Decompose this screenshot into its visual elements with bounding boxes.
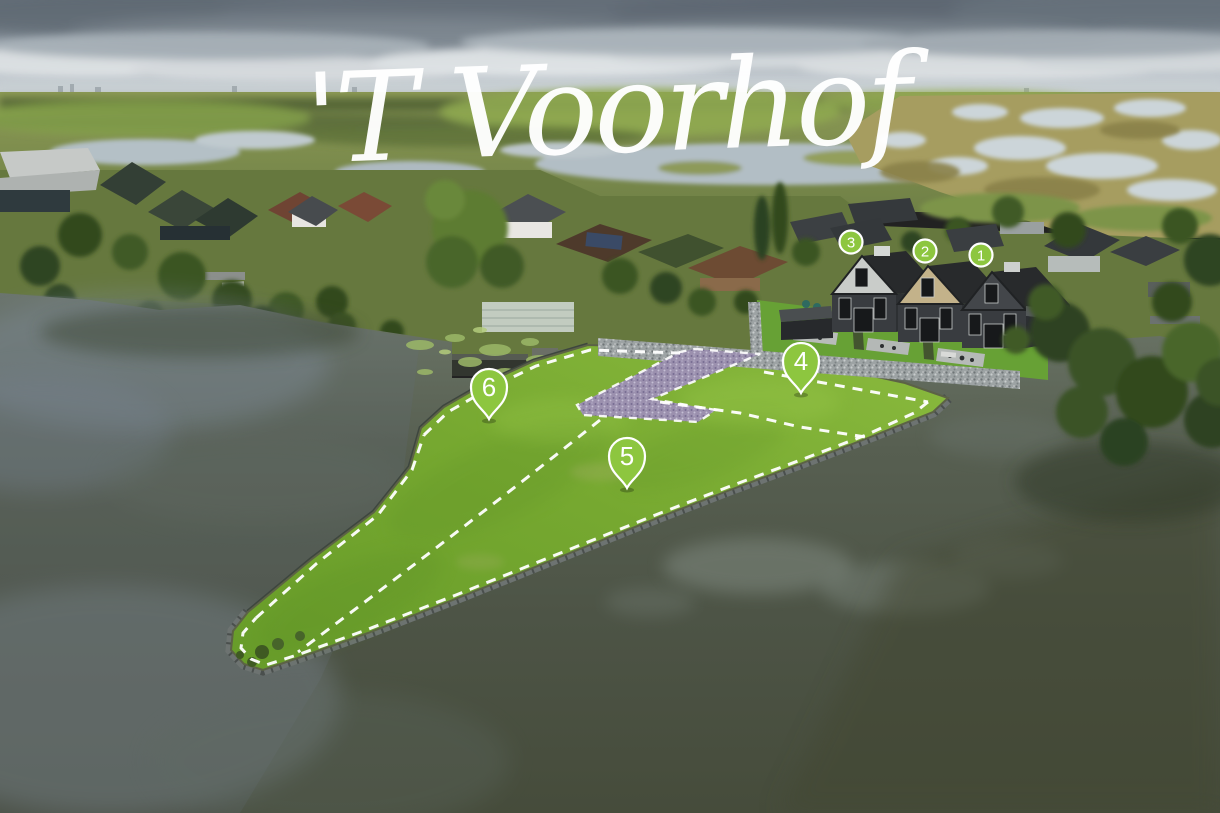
house-marker-2[interactable]: 2 <box>914 240 937 263</box>
svg-text:1: 1 <box>977 248 985 265</box>
project-logo: 'T Voorhof <box>303 27 934 193</box>
svg-text:5: 5 <box>620 441 634 471</box>
house-marker-1[interactable]: 1 <box>970 244 993 267</box>
dock <box>205 272 245 280</box>
screenshot-root: 3 2 1 4 5 6 'T Voorhof <box>0 0 1220 813</box>
shore-reflection <box>40 306 360 358</box>
aerial-photo: 3 2 1 4 5 6 'T Voorhof <box>0 0 1220 813</box>
svg-text:4: 4 <box>794 346 808 376</box>
svg-text:2: 2 <box>921 244 929 261</box>
svg-text:3: 3 <box>847 235 855 252</box>
greenhouse <box>482 302 574 332</box>
svg-text:6: 6 <box>482 372 496 402</box>
shed <box>779 306 833 340</box>
house-marker-3[interactable]: 3 <box>840 231 863 254</box>
